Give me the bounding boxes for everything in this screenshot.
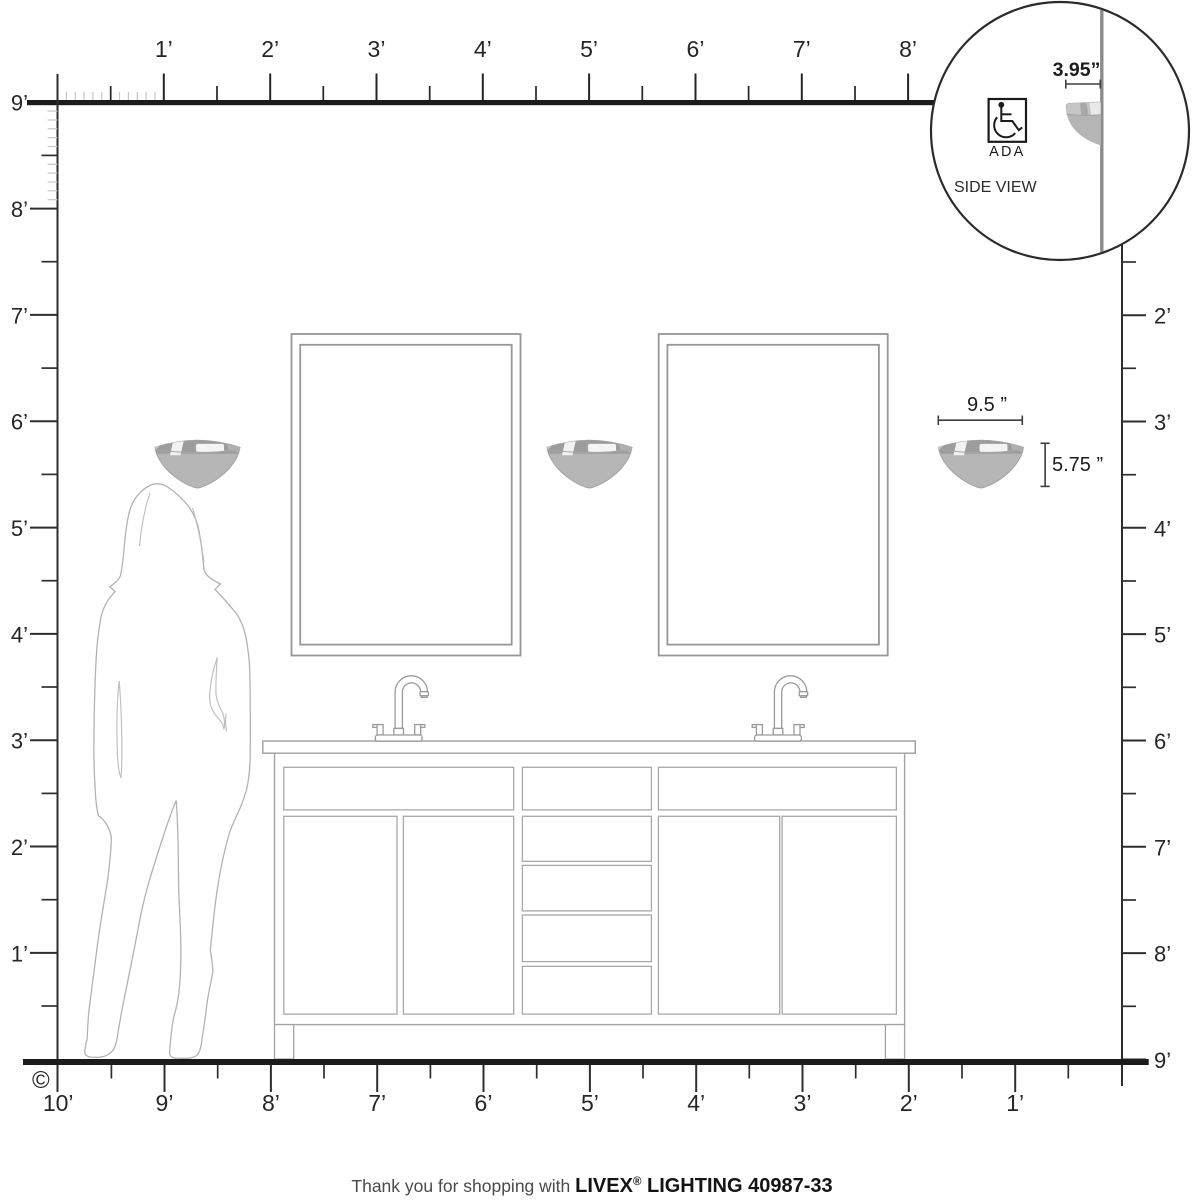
svg-text:1’: 1’ xyxy=(155,36,173,62)
svg-text:8’: 8’ xyxy=(1154,942,1171,967)
svg-text:1’: 1’ xyxy=(11,941,28,966)
svg-text:2’: 2’ xyxy=(261,36,279,62)
svg-text:9’: 9’ xyxy=(11,91,28,116)
svg-text:5’: 5’ xyxy=(581,1090,599,1116)
svg-text:4’: 4’ xyxy=(11,622,28,647)
svg-text:©: © xyxy=(32,1067,50,1094)
svg-text:9’: 9’ xyxy=(156,1090,174,1116)
svg-text:7’: 7’ xyxy=(368,1090,386,1116)
svg-text:7’: 7’ xyxy=(793,36,811,62)
svg-text:6’: 6’ xyxy=(687,36,705,62)
svg-text:Thank you for shopping with LI: Thank you for shopping with LIVEX® LIGHT… xyxy=(351,1175,832,1197)
svg-text:4’: 4’ xyxy=(474,36,492,62)
svg-text:4’: 4’ xyxy=(687,1090,705,1116)
svg-text:5’: 5’ xyxy=(11,516,28,541)
svg-text:7’: 7’ xyxy=(11,303,28,328)
svg-text:5.75 ”: 5.75 ” xyxy=(1052,454,1103,476)
svg-text:8’: 8’ xyxy=(899,36,917,62)
svg-text:2’: 2’ xyxy=(11,835,28,860)
svg-text:1’: 1’ xyxy=(1006,1090,1024,1116)
svg-text:8’: 8’ xyxy=(11,197,28,222)
svg-text:ADA: ADA xyxy=(989,144,1025,160)
svg-text:2’: 2’ xyxy=(900,1090,918,1116)
svg-text:6’: 6’ xyxy=(1154,729,1171,754)
svg-text:3’: 3’ xyxy=(11,729,28,754)
svg-text:6’: 6’ xyxy=(11,410,28,435)
svg-text:2’: 2’ xyxy=(1154,304,1171,329)
svg-text:3’: 3’ xyxy=(368,36,386,62)
svg-text:SIDE VIEW: SIDE VIEW xyxy=(954,179,1038,196)
svg-text:3.95”: 3.95” xyxy=(1053,59,1101,81)
svg-text:4’: 4’ xyxy=(1154,516,1171,541)
svg-text:9.5 ”: 9.5 ” xyxy=(967,394,1007,416)
svg-text:3’: 3’ xyxy=(1154,410,1171,435)
svg-text:6’: 6’ xyxy=(475,1090,493,1116)
svg-text:7’: 7’ xyxy=(1154,835,1171,860)
svg-text:5’: 5’ xyxy=(1154,623,1171,648)
svg-text:3’: 3’ xyxy=(794,1090,812,1116)
svg-text:8’: 8’ xyxy=(262,1090,280,1116)
svg-text:5’: 5’ xyxy=(580,36,598,62)
svg-text:9’: 9’ xyxy=(1154,1048,1171,1073)
